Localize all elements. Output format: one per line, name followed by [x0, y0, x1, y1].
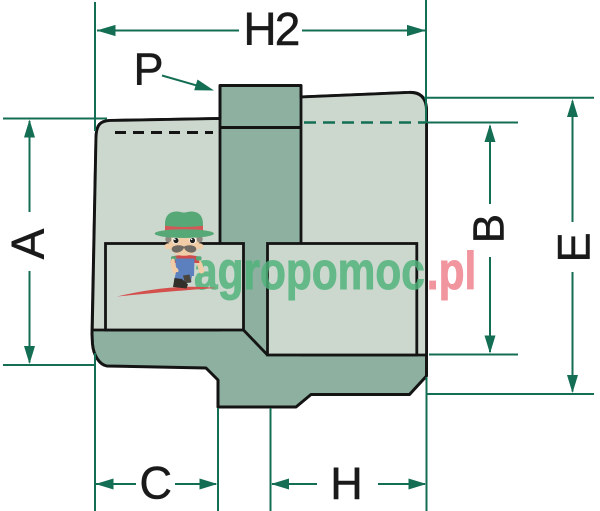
svg-text:A: A	[2, 228, 54, 259]
svg-text:agropomoc: agropomoc	[194, 243, 425, 302]
svg-text:E: E	[549, 232, 600, 262]
svg-text:H2: H2	[243, 3, 298, 55]
svg-text:C: C	[139, 458, 172, 509]
svg-text:H: H	[330, 458, 363, 509]
svg-text:B: B	[465, 214, 514, 243]
svg-text:.pl: .pl	[427, 243, 476, 302]
svg-text:P: P	[134, 44, 164, 95]
